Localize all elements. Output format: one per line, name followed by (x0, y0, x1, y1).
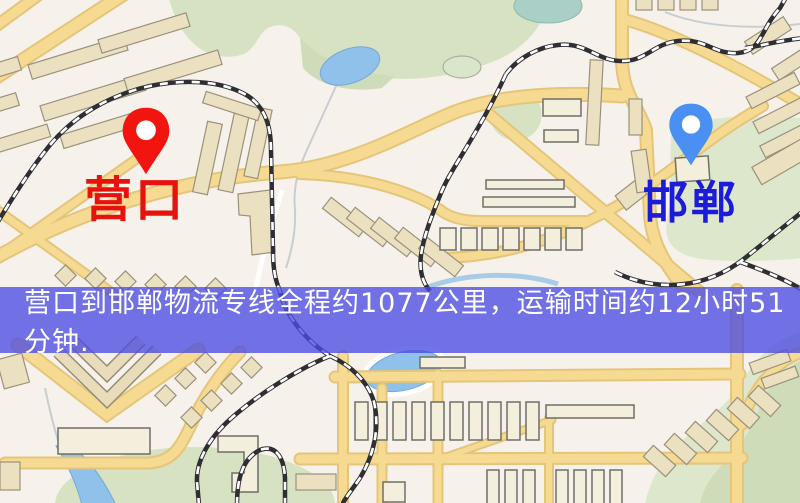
destination-label: 邯郸 (643, 180, 739, 225)
blue-map-pin-icon (666, 102, 716, 167)
route-banner-text: 营口到邯郸物流专线全程约1077公里，运输时间约12小时51分钟. (24, 281, 800, 359)
map-view: 营口 邯郸 营口到邯郸物流专线全程约1077公里，运输时间约12小时51分钟. (0, 0, 800, 503)
origin-pin[interactable] (119, 106, 173, 176)
origin-label: 营口 (84, 176, 186, 224)
route-banner: 营口到邯郸物流专线全程约1077公里，运输时间约12小时51分钟. (0, 287, 800, 353)
destination-pin[interactable] (666, 102, 716, 167)
map-canvas[interactable] (0, 0, 800, 503)
red-map-pin-icon (119, 106, 173, 176)
